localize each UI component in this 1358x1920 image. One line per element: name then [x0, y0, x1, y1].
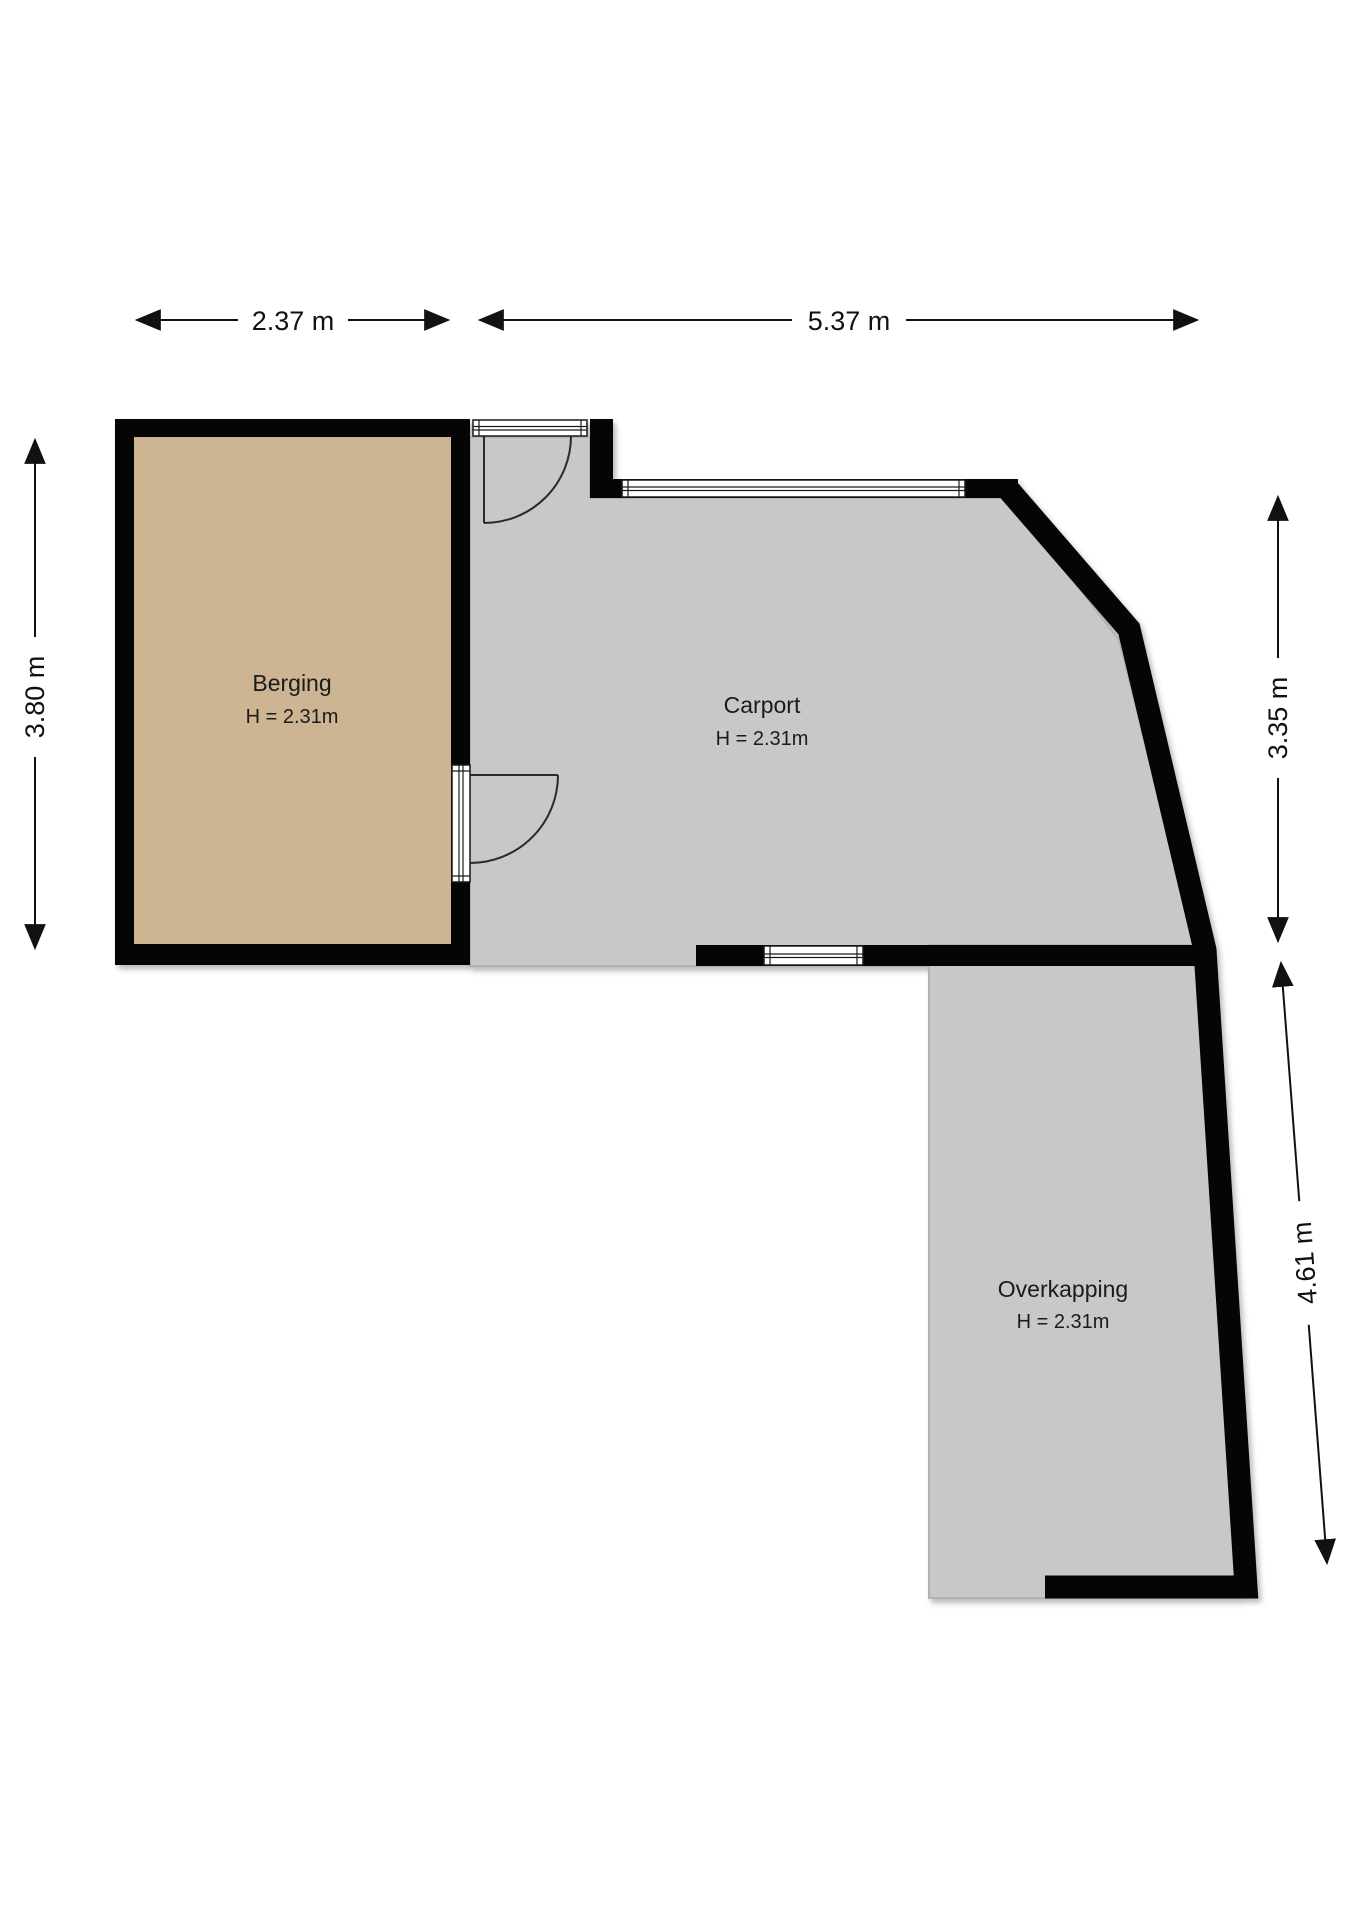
floorplan-page: Berging H = 2.31m Carport H = 2.31m Over… — [0, 0, 1358, 1920]
overkapping-floor — [929, 945, 1240, 1598]
berging-door-frame — [452, 765, 470, 882]
floorplan-canvas: Berging H = 2.31m Carport H = 2.31m Over… — [0, 0, 1358, 1920]
overkapping-label: Overkapping — [998, 1276, 1128, 1302]
dimension-left: 3.80 m — [20, 440, 50, 948]
dimension-top-right: 5.37 m — [480, 305, 1197, 336]
dimension-right-lower: 4.61 m — [1281, 963, 1327, 1563]
carport-label: Carport — [724, 692, 801, 718]
dim-left-value: 3.80 m — [20, 656, 50, 739]
carport-top-wall-block — [590, 419, 613, 498]
overkapping-height-label: H = 2.31m — [1017, 1311, 1110, 1333]
carport-height-label: H = 2.31m — [716, 728, 809, 750]
dim-top-right-value: 5.37 m — [808, 306, 891, 336]
carport-floor — [470, 437, 1205, 966]
carport-bottom-window — [764, 946, 863, 965]
dim-right-lower-value: 4.61 m — [1287, 1221, 1323, 1306]
dim-top-left-value: 2.37 m — [252, 306, 335, 336]
floorplan-drawing: Berging H = 2.31m Carport H = 2.31m Over… — [115, 419, 1246, 1598]
dim-right-upper-value: 3.35 m — [1263, 677, 1293, 760]
berging-label: Berging — [252, 670, 331, 696]
dimension-right-upper: 3.35 m — [1263, 497, 1293, 941]
berging-height-label: H = 2.31m — [246, 706, 339, 728]
carport-top-window — [622, 480, 965, 497]
dimension-top-left: 2.37 m — [137, 305, 448, 336]
carport-top-door-frame — [473, 420, 587, 436]
